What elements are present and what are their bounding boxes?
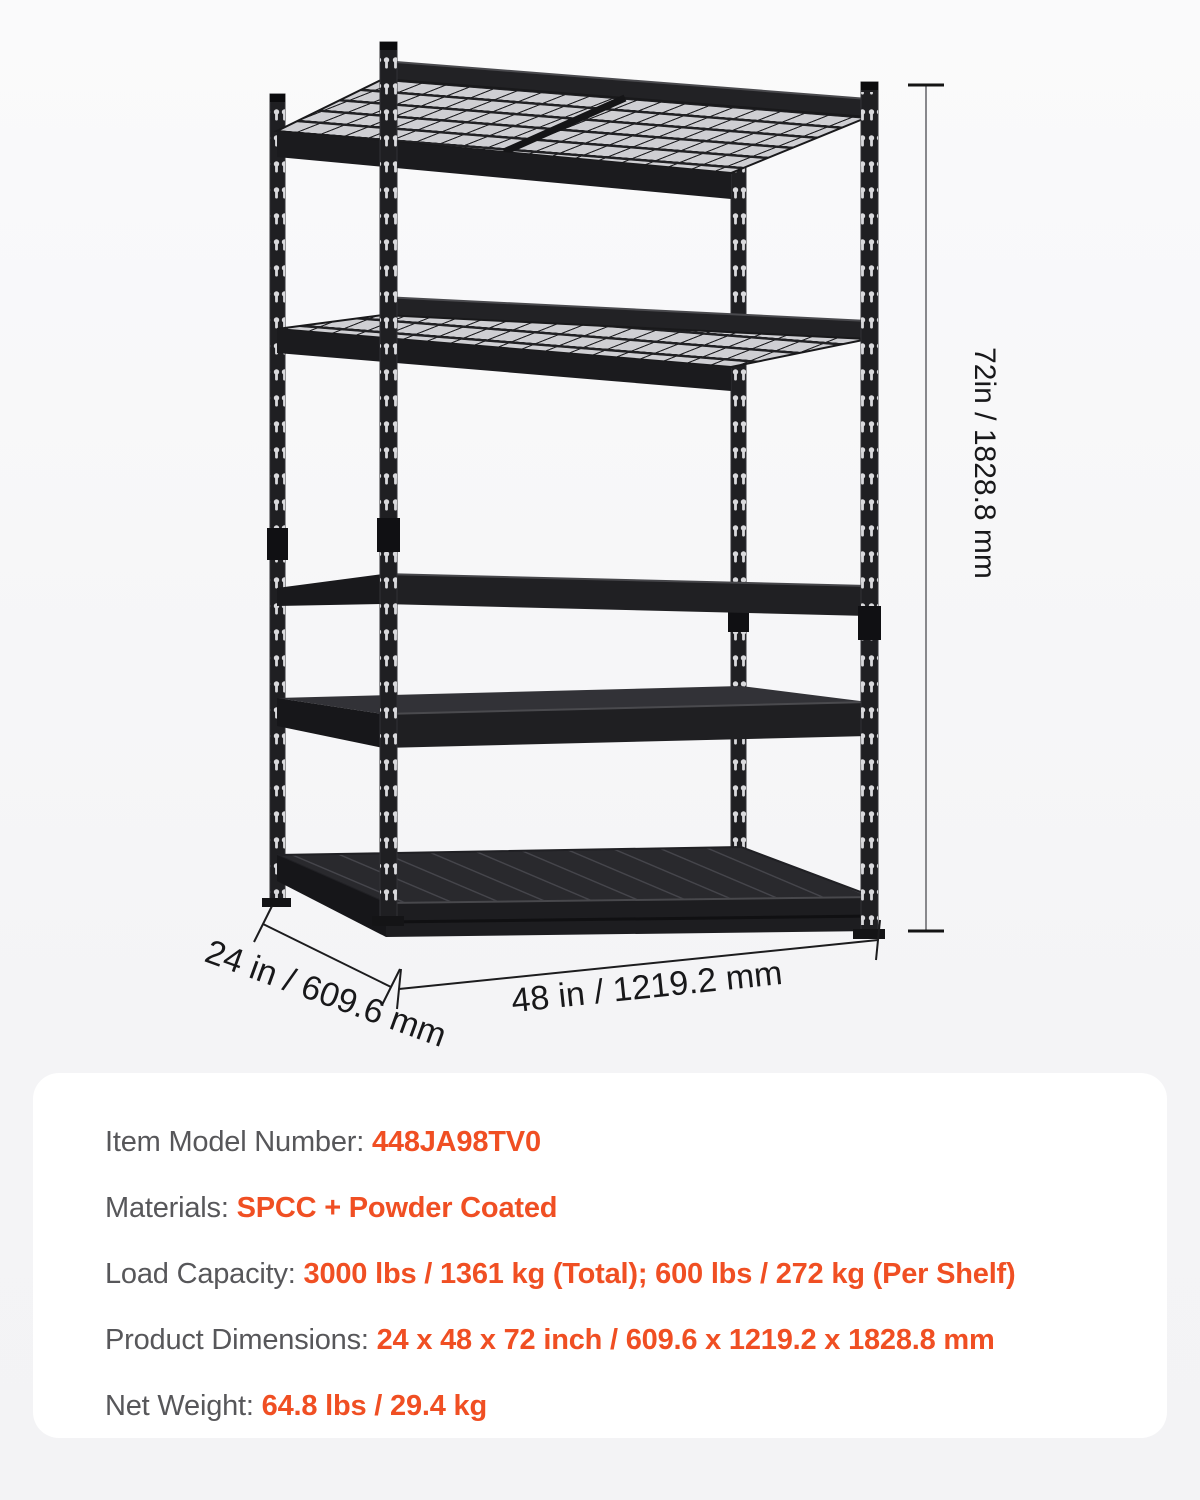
spec-label: Load Capacity: bbox=[105, 1258, 304, 1290]
spec-value: SPCC + Powder Coated bbox=[237, 1192, 558, 1224]
height-dimension: 72in / 1828.8 mm bbox=[908, 85, 1001, 931]
shelf-2 bbox=[277, 297, 868, 391]
post-front-left bbox=[372, 42, 404, 926]
post-back-left bbox=[262, 94, 291, 907]
spec-row-dimensions: Product Dimensions: 24 x 48 x 72 inch / … bbox=[105, 1307, 1103, 1373]
foot-front-left bbox=[372, 916, 404, 926]
foot-back-left bbox=[262, 898, 291, 907]
page: { "diagram": { "shelf_count": 5, "height… bbox=[0, 0, 1200, 1500]
spec-label: Materials: bbox=[105, 1192, 237, 1224]
height-dimension-label: 72in / 1828.8 mm bbox=[968, 347, 1001, 579]
spec-row-net-weight: Net Weight: 64.8 lbs / 29.4 kg bbox=[105, 1373, 1103, 1439]
spec-row-model: Item Model Number: 448JA98TV0 bbox=[105, 1109, 1103, 1175]
foot-front-right bbox=[853, 929, 885, 939]
spec-label: Net Weight: bbox=[105, 1390, 262, 1422]
post-front-right bbox=[853, 82, 885, 939]
spec-label: Item Model Number: bbox=[105, 1126, 372, 1158]
spec-value: 3000 lbs / 1361 kg (Total); 600 lbs / 27… bbox=[304, 1258, 1016, 1290]
spec-value: 448JA98TV0 bbox=[372, 1126, 541, 1158]
spec-label: Product Dimensions: bbox=[105, 1324, 377, 1356]
shelf-5 bbox=[277, 847, 874, 937]
shelf-4 bbox=[277, 686, 868, 748]
spec-row-materials: Materials: SPCC + Powder Coated bbox=[105, 1175, 1103, 1241]
spec-value: 24 x 48 x 72 inch / 609.6 x 1219.2 x 182… bbox=[377, 1324, 995, 1356]
spec-row-load-capacity: Load Capacity: 3000 lbs / 1361 kg (Total… bbox=[105, 1241, 1103, 1307]
shelf-3 bbox=[277, 574, 868, 616]
shelving-rack-illustration: 72in / 1828.8 mm 24 in / 609.6 mm 48 in … bbox=[0, 0, 1200, 1073]
depth-dimension-label: 24 in / 609.6 mm bbox=[200, 933, 451, 1055]
spec-value: 64.8 lbs / 29.4 kg bbox=[262, 1390, 487, 1422]
shelf-1 bbox=[277, 61, 868, 199]
post-back-right bbox=[724, 150, 753, 903]
spec-panel: Item Model Number: 448JA98TV0 Materials:… bbox=[33, 1073, 1167, 1438]
product-diagram: 72in / 1828.8 mm 24 in / 609.6 mm 48 in … bbox=[0, 0, 1200, 1073]
